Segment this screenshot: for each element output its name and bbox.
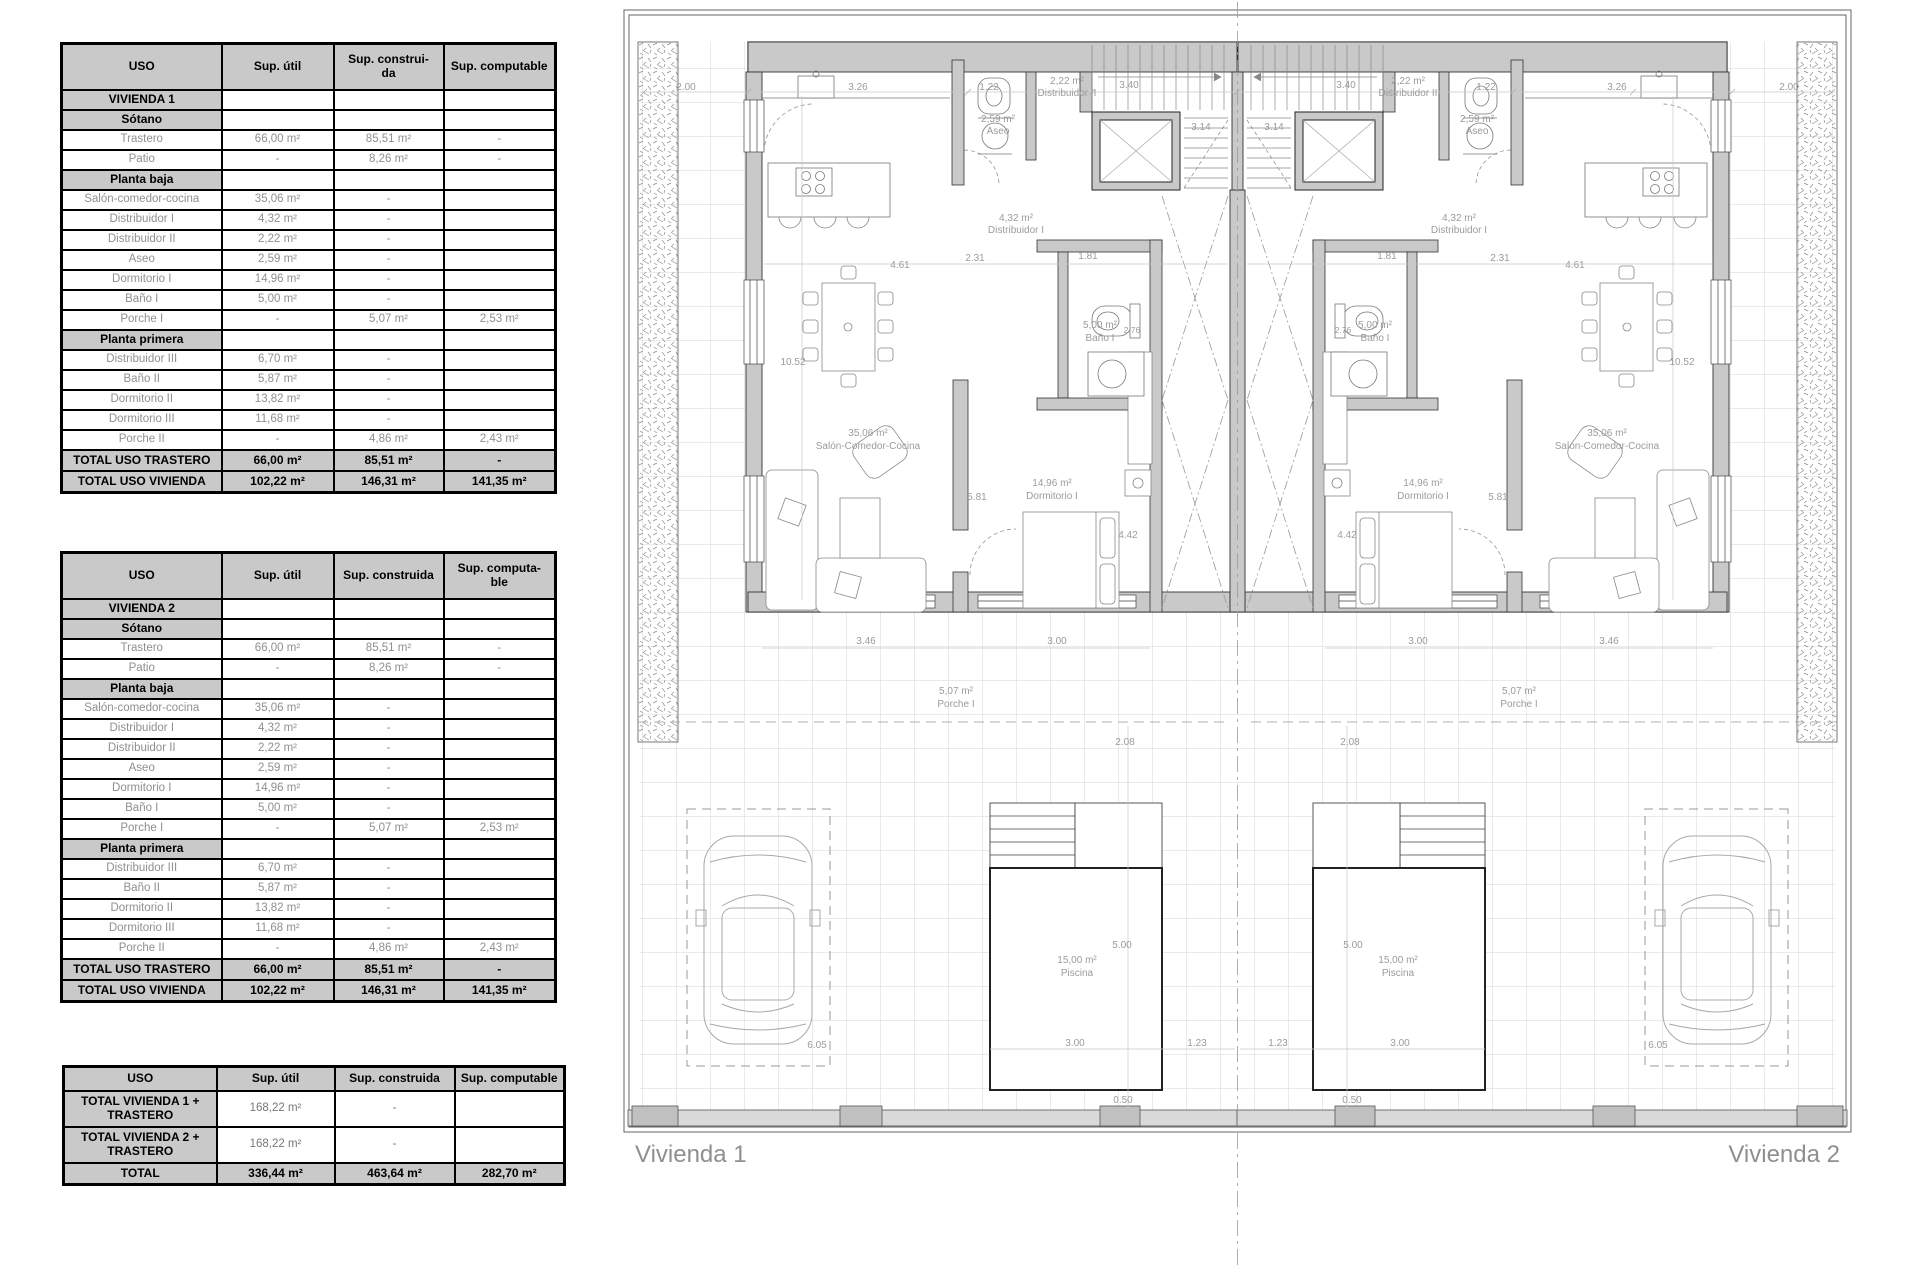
table-cell: 8,26 m² <box>334 659 444 679</box>
table-cell: - <box>222 659 334 679</box>
room-area-label: 5,00 m² <box>1083 320 1118 331</box>
table-cell: Salón-comedor-cocina <box>62 699 222 719</box>
floor-plan: 2.00 2.00 3.26 3.26 1.22 1.22 2,22 m² Di… <box>540 0 1920 1280</box>
dim-label: 2.00 <box>676 82 696 93</box>
table-cell: - <box>334 799 444 819</box>
room-area-label: 2,22 m² <box>1050 76 1085 87</box>
table-cell: 5,87 m² <box>222 370 334 390</box>
dim-label: 3.00 <box>1408 636 1428 647</box>
table-row: TOTAL VIVIENDA 1 + TRASTERO168,22 m²- <box>64 1091 565 1127</box>
table-row: Dormitorio III11,68 m²- <box>62 410 556 430</box>
dim-label: 2.76 <box>1124 325 1141 335</box>
table-cell: 102,22 m² <box>222 980 334 1002</box>
table-cell: 66,00 m² <box>222 450 334 471</box>
dim-label: 1.81 <box>1377 251 1397 262</box>
table-cell: Distribuidor II <box>62 230 222 250</box>
table-cell <box>444 270 556 290</box>
table-cell <box>222 90 334 110</box>
dim-label: 5.00 <box>1112 940 1132 951</box>
dim-label: 2.76 <box>1335 325 1352 335</box>
table-cell: 14,96 m² <box>222 779 334 799</box>
table-header-cell: USO <box>64 1067 217 1092</box>
table-cell: 14,96 m² <box>222 270 334 290</box>
table-cell: - <box>334 230 444 250</box>
dim-label: 2.08 <box>1115 737 1135 748</box>
table-cell: Porche I <box>62 819 222 839</box>
table-cell: 5,07 m² <box>334 819 444 839</box>
unit-title-vivienda-2: Vivienda 2 <box>1728 1141 1840 1168</box>
room-name-label: Baño I <box>1086 333 1115 344</box>
table-cell: 85,51 m² <box>334 639 444 659</box>
table-cell <box>444 250 556 270</box>
table-cell: 2,53 m² <box>444 819 556 839</box>
room-name-label: Piscina <box>1382 968 1415 979</box>
table-cell: - <box>444 959 556 980</box>
table-row: TOTAL USO TRASTERO66,00 m²85,51 m²- <box>62 959 556 980</box>
room-name-label: Porche I <box>937 699 974 710</box>
room-area-label: 35,06 m² <box>848 428 888 439</box>
table-cell: VIVIENDA 1 <box>62 90 222 110</box>
table-cell: Distribuidor III <box>62 350 222 370</box>
table-cell: - <box>222 819 334 839</box>
table-row: Porche II-4,86 m²2,43 m² <box>62 430 556 450</box>
room-area-label: 15,00 m² <box>1378 955 1418 966</box>
table-cell: 8,26 m² <box>334 150 444 170</box>
room-name-label: Baño I <box>1361 333 1390 344</box>
plan-sheet: USOSup. útilSup. construi- daSup. comput… <box>0 0 1920 1280</box>
room-area-label: 15,00 m² <box>1057 955 1097 966</box>
table-row: Distribuidor III6,70 m²- <box>62 859 556 879</box>
table-cell: Patio <box>62 150 222 170</box>
table-cell: Baño II <box>62 879 222 899</box>
table-row: Aseo2,59 m²- <box>62 759 556 779</box>
room-name-label: Distribuidor I <box>1431 225 1487 236</box>
table-cell: Salón-comedor-cocina <box>62 190 222 210</box>
table-header-cell: Sup. útil <box>222 44 334 91</box>
dim-label: 0.50 <box>1113 1095 1133 1106</box>
table-row: TOTAL USO VIVIENDA102,22 m²146,31 m²141,… <box>62 471 556 493</box>
dim-label: 1.22 <box>1476 82 1496 93</box>
table-cell <box>222 170 334 190</box>
table-cell <box>222 110 334 130</box>
dim-label: 2.00 <box>1779 82 1799 93</box>
table-cell: TOTAL <box>64 1163 217 1185</box>
table-cell: 102,22 m² <box>222 471 334 493</box>
table-cell <box>444 679 556 699</box>
table-cell: - <box>334 270 444 290</box>
room-name-label: Aseo <box>987 126 1010 137</box>
table-cell: 11,68 m² <box>222 919 334 939</box>
table-cell: Baño II <box>62 370 222 390</box>
room-area-label: 14,96 m² <box>1403 478 1443 489</box>
table-row: Distribuidor I4,32 m²- <box>62 210 556 230</box>
table-cell: Porche II <box>62 939 222 959</box>
table-cell: Sótano <box>62 619 222 639</box>
dim-label: 10.52 <box>1669 357 1694 368</box>
dim-label: 1.23 <box>1268 1038 1288 1049</box>
table-cell: Dormitorio III <box>62 919 222 939</box>
table-cell: - <box>444 450 556 471</box>
table-cell <box>334 90 444 110</box>
dim-label: 5.81 <box>967 492 987 503</box>
table-cell <box>444 350 556 370</box>
table-cell: Aseo <box>62 250 222 270</box>
dim-label: 2.31 <box>965 253 985 264</box>
room-area-label: 2,59 m² <box>1460 114 1495 125</box>
area-table-totals: USOSup. útilSup. construidaSup. computab… <box>62 1065 566 1186</box>
table-cell <box>222 599 334 619</box>
table-cell: 11,68 m² <box>222 410 334 430</box>
table-cell: Trastero <box>62 130 222 150</box>
table-row: Planta primera <box>62 330 556 350</box>
table-row: Aseo2,59 m²- <box>62 250 556 270</box>
table-cell: 2,43 m² <box>444 939 556 959</box>
room-area-label: 2,59 m² <box>981 114 1016 125</box>
dim-label: 4.61 <box>890 260 910 271</box>
table-cell: TOTAL USO VIVIENDA <box>62 980 222 1002</box>
table-cell: 13,82 m² <box>222 390 334 410</box>
table-cell: - <box>334 779 444 799</box>
table-header-cell: Sup. construida <box>334 553 444 600</box>
table-cell <box>444 719 556 739</box>
table-cell <box>444 899 556 919</box>
dim-label: 3.14 <box>1264 122 1284 133</box>
table-cell: 35,06 m² <box>222 699 334 719</box>
table-row: Planta baja <box>62 679 556 699</box>
area-table-vivienda-2: USOSup. útilSup. construidaSup. computa-… <box>60 551 557 1003</box>
dim-label: 5.81 <box>1488 492 1508 503</box>
table-cell <box>444 330 556 350</box>
table-row: Trastero66,00 m²85,51 m²- <box>62 639 556 659</box>
table-cell <box>444 919 556 939</box>
table-cell: - <box>334 759 444 779</box>
table-cell: 4,32 m² <box>222 210 334 230</box>
table-cell: 85,51 m² <box>334 959 444 980</box>
table-cell <box>444 619 556 639</box>
table-cell: - <box>334 919 444 939</box>
table-cell: Planta baja <box>62 679 222 699</box>
table-cell: 4,86 m² <box>334 939 444 959</box>
table-cell: - <box>334 859 444 879</box>
room-name-label: Porche I <box>1500 699 1537 710</box>
table-cell <box>444 230 556 250</box>
room-name-label: Distribuidor I <box>988 225 1044 236</box>
table-cell: 4,86 m² <box>334 430 444 450</box>
table-cell: - <box>222 939 334 959</box>
kitchen-island <box>762 71 950 228</box>
table-row: Baño I5,00 m²- <box>62 799 556 819</box>
table-row: TOTAL336,44 m²463,64 m²282,70 m² <box>64 1163 565 1185</box>
table-cell: Trastero <box>62 639 222 659</box>
table-row: Dormitorio III11,68 m²- <box>62 919 556 939</box>
table-cell: Porche I <box>62 310 222 330</box>
table-row: Sótano <box>62 110 556 130</box>
dining-table <box>803 266 893 387</box>
table-row: TOTAL USO TRASTERO66,00 m²85,51 m²- <box>62 450 556 471</box>
table-cell: Planta primera <box>62 330 222 350</box>
table-cell: TOTAL VIVIENDA 1 + TRASTERO <box>64 1091 217 1127</box>
table-cell: Dormitorio II <box>62 390 222 410</box>
table-row: Baño II5,87 m²- <box>62 370 556 390</box>
table-cell: Dormitorio II <box>62 899 222 919</box>
table-cell: - <box>222 150 334 170</box>
table-cell: 463,64 m² <box>335 1163 455 1185</box>
table-row: Dormitorio II13,82 m²- <box>62 390 556 410</box>
dim-label: 2.08 <box>1340 737 1360 748</box>
table-cell: - <box>334 879 444 899</box>
table-header-row: USOSup. útilSup. construidaSup. computab… <box>64 1067 565 1092</box>
table-row: Patio-8,26 m²- <box>62 150 556 170</box>
dim-label: 2.31 <box>1490 253 1510 264</box>
table-cell <box>444 799 556 819</box>
table-cell: 5,07 m² <box>334 310 444 330</box>
table-cell: 141,35 m² <box>444 980 556 1002</box>
table-cell <box>444 859 556 879</box>
table-cell: - <box>334 250 444 270</box>
table-header-cell: USO <box>62 553 222 600</box>
table-cell: 66,00 m² <box>222 639 334 659</box>
room-area-label: 5,00 m² <box>1358 320 1393 331</box>
table-row: Dormitorio II13,82 m²- <box>62 899 556 919</box>
table-row: VIVIENDA 2 <box>62 599 556 619</box>
room-area-label: 14,96 m² <box>1032 478 1072 489</box>
dim-label: 3.40 <box>1119 80 1139 91</box>
table-row: Porche II-4,86 m²2,43 m² <box>62 939 556 959</box>
table-cell: - <box>334 210 444 230</box>
dim-label: 6.05 <box>1648 1040 1668 1051</box>
table-cell <box>222 330 334 350</box>
table-cell: Aseo <box>62 759 222 779</box>
dim-label: 3.14 <box>1191 122 1211 133</box>
table-cell <box>444 210 556 230</box>
table-cell: Distribuidor I <box>62 210 222 230</box>
table-cell <box>444 839 556 859</box>
table-row: TOTAL USO VIVIENDA102,22 m²146,31 m²141,… <box>62 980 556 1002</box>
table-header-cell: Sup. útil <box>222 553 334 600</box>
room-name-label: Salón-Comedor-Cocina <box>816 441 921 452</box>
dim-label: 0.50 <box>1342 1095 1362 1106</box>
table-row: Porche I-5,07 m²2,53 m² <box>62 310 556 330</box>
table-cell: 141,35 m² <box>444 471 556 493</box>
table-cell: Dormitorio I <box>62 270 222 290</box>
room-name-label: Dormitorio I <box>1397 491 1449 502</box>
table-row: Sótano <box>62 619 556 639</box>
table-cell: 146,31 m² <box>334 980 444 1002</box>
table-header-cell: Sup. útil <box>217 1067 335 1092</box>
table-cell: 6,70 m² <box>222 350 334 370</box>
table-row: Porche I-5,07 m²2,53 m² <box>62 819 556 839</box>
table-header-cell: Sup. computa- ble <box>444 553 556 600</box>
table-header-cell: USO <box>62 44 222 91</box>
table-cell: - <box>444 639 556 659</box>
room-area-label: 2,22 m² <box>1391 76 1426 87</box>
dim-label: 3.00 <box>1065 1038 1085 1049</box>
room-area-label: 35,06 m² <box>1587 428 1627 439</box>
room-area-label: 4,32 m² <box>999 213 1034 224</box>
table-cell: Distribuidor III <box>62 859 222 879</box>
table-cell <box>444 110 556 130</box>
ramp <box>1162 196 1228 608</box>
table-header-cell: Sup. computable <box>444 44 556 91</box>
table-cell <box>334 170 444 190</box>
dim-label: 3.46 <box>1599 636 1619 647</box>
table-cell: TOTAL VIVIENDA 2 + TRASTERO <box>64 1127 217 1163</box>
dim-label: 5.00 <box>1343 940 1363 951</box>
table-cell: 2,43 m² <box>444 430 556 450</box>
table-cell <box>444 779 556 799</box>
table-cell: - <box>334 899 444 919</box>
dim-label: 3.00 <box>1047 636 1067 647</box>
table-cell: 168,22 m² <box>217 1091 335 1127</box>
room-name-label: Aseo <box>1466 126 1489 137</box>
dim-label: 4.42 <box>1337 530 1357 541</box>
dim-label: 3.26 <box>1607 82 1627 93</box>
table-row: TOTAL VIVIENDA 2 + TRASTERO168,22 m²- <box>64 1127 565 1163</box>
table-cell: - <box>335 1091 455 1127</box>
table-cell <box>334 330 444 350</box>
table-cell <box>222 679 334 699</box>
table-row: Baño II5,87 m²- <box>62 879 556 899</box>
table-cell: - <box>222 430 334 450</box>
dim-label: 1.22 <box>979 82 999 93</box>
elevator-shaft <box>1092 112 1180 190</box>
dim-label: 4.42 <box>1118 530 1138 541</box>
table-cell <box>444 879 556 899</box>
table-cell: 5,00 m² <box>222 290 334 310</box>
table-cell: VIVIENDA 2 <box>62 599 222 619</box>
table-cell: - <box>334 370 444 390</box>
table-cell: - <box>335 1127 455 1163</box>
table-cell: Porche II <box>62 430 222 450</box>
table-cell: 4,32 m² <box>222 719 334 739</box>
table-cell: - <box>444 150 556 170</box>
table-cell: - <box>444 130 556 150</box>
table-cell <box>444 410 556 430</box>
dim-label: 6.05 <box>807 1040 827 1051</box>
room-name-label: Distribuidor II <box>1038 88 1097 99</box>
table-header-cell: Sup. construida <box>335 1067 455 1092</box>
table-cell <box>444 290 556 310</box>
table-cell: Baño I <box>62 799 222 819</box>
table-row: Dormitorio I14,96 m²- <box>62 779 556 799</box>
area-table-vivienda-1: USOSup. útilSup. construi- daSup. comput… <box>60 42 557 494</box>
room-name-label: Distribuidor II <box>1379 88 1438 99</box>
table-cell: Distribuidor I <box>62 719 222 739</box>
table-row: Salón-comedor-cocina35,06 m²- <box>62 699 556 719</box>
table-cell: 2,59 m² <box>222 759 334 779</box>
table-cell <box>444 370 556 390</box>
dim-label: 4.61 <box>1565 260 1585 271</box>
table-cell: 5,87 m² <box>222 879 334 899</box>
table-cell: - <box>334 390 444 410</box>
room-name-label: Salón-Comedor-Cocina <box>1555 441 1660 452</box>
table-cell <box>334 839 444 859</box>
table-cell <box>444 190 556 210</box>
table-cell: Planta primera <box>62 839 222 859</box>
table-cell: - <box>334 699 444 719</box>
table-row: Dormitorio I14,96 m²- <box>62 270 556 290</box>
table-cell: 2,22 m² <box>222 230 334 250</box>
table-row: Patio-8,26 m²- <box>62 659 556 679</box>
table-cell: - <box>334 719 444 739</box>
room-name-label: Piscina <box>1061 968 1094 979</box>
dim-label: 1.23 <box>1187 1038 1207 1049</box>
table-cell: 146,31 m² <box>334 471 444 493</box>
table-header-cell: Sup. construi- da <box>334 44 444 91</box>
table-cell: 5,00 m² <box>222 799 334 819</box>
table-cell: 66,00 m² <box>222 130 334 150</box>
table-cell: TOTAL USO TRASTERO <box>62 959 222 980</box>
table-row: Planta baja <box>62 170 556 190</box>
table-cell <box>222 619 334 639</box>
table-cell <box>444 739 556 759</box>
table-cell: Distribuidor II <box>62 739 222 759</box>
table-header-row: USOSup. útilSup. construidaSup. computa-… <box>62 553 556 600</box>
table-cell <box>334 110 444 130</box>
table-cell: 35,06 m² <box>222 190 334 210</box>
table-cell: 336,44 m² <box>217 1163 335 1185</box>
room-area-label: 5,07 m² <box>939 686 974 697</box>
table-row: Distribuidor II2,22 m²- <box>62 739 556 759</box>
table-cell: - <box>334 739 444 759</box>
table-cell: Planta baja <box>62 170 222 190</box>
table-cell: Baño I <box>62 290 222 310</box>
table-cell: 2,22 m² <box>222 739 334 759</box>
dim-label: 10.52 <box>780 357 805 368</box>
table-row: Trastero66,00 m²85,51 m²- <box>62 130 556 150</box>
table-cell: 85,51 m² <box>334 450 444 471</box>
table-header-row: USOSup. útilSup. construi- daSup. comput… <box>62 44 556 91</box>
table-row: Distribuidor I4,32 m²- <box>62 719 556 739</box>
dim-label: 1.81 <box>1078 251 1098 262</box>
table-cell <box>334 599 444 619</box>
table-cell <box>444 170 556 190</box>
table-cell: - <box>334 290 444 310</box>
table-row: Distribuidor III6,70 m²- <box>62 350 556 370</box>
table-cell <box>444 599 556 619</box>
dim-label: 3.26 <box>848 82 868 93</box>
table-cell <box>222 839 334 859</box>
dim-label: 3.46 <box>856 636 876 647</box>
table-cell <box>444 90 556 110</box>
table-cell: - <box>444 659 556 679</box>
table-cell: TOTAL USO TRASTERO <box>62 450 222 471</box>
table-cell: - <box>222 310 334 330</box>
table-cell: 2,53 m² <box>444 310 556 330</box>
table-cell: 66,00 m² <box>222 959 334 980</box>
dim-label: 3.00 <box>1390 1038 1410 1049</box>
table-cell <box>334 679 444 699</box>
table-row: Salón-comedor-cocina35,06 m²- <box>62 190 556 210</box>
bathroom-fixtures <box>1088 304 1144 396</box>
table-cell: Dormitorio I <box>62 779 222 799</box>
table-cell: - <box>334 350 444 370</box>
room-area-label: 5,07 m² <box>1502 686 1537 697</box>
table-row: Planta primera <box>62 839 556 859</box>
table-row: VIVIENDA 1 <box>62 90 556 110</box>
room-name-label: Dormitorio I <box>1026 491 1078 502</box>
table-cell: TOTAL USO VIVIENDA <box>62 471 222 493</box>
gravel-strip <box>638 42 678 742</box>
table-cell: 168,22 m² <box>217 1127 335 1163</box>
table-cell: 6,70 m² <box>222 859 334 879</box>
table-row: Distribuidor II2,22 m²- <box>62 230 556 250</box>
table-cell <box>444 699 556 719</box>
table-cell <box>444 759 556 779</box>
room-area-label: 4,32 m² <box>1442 213 1477 224</box>
table-cell <box>444 390 556 410</box>
table-cell: 13,82 m² <box>222 899 334 919</box>
